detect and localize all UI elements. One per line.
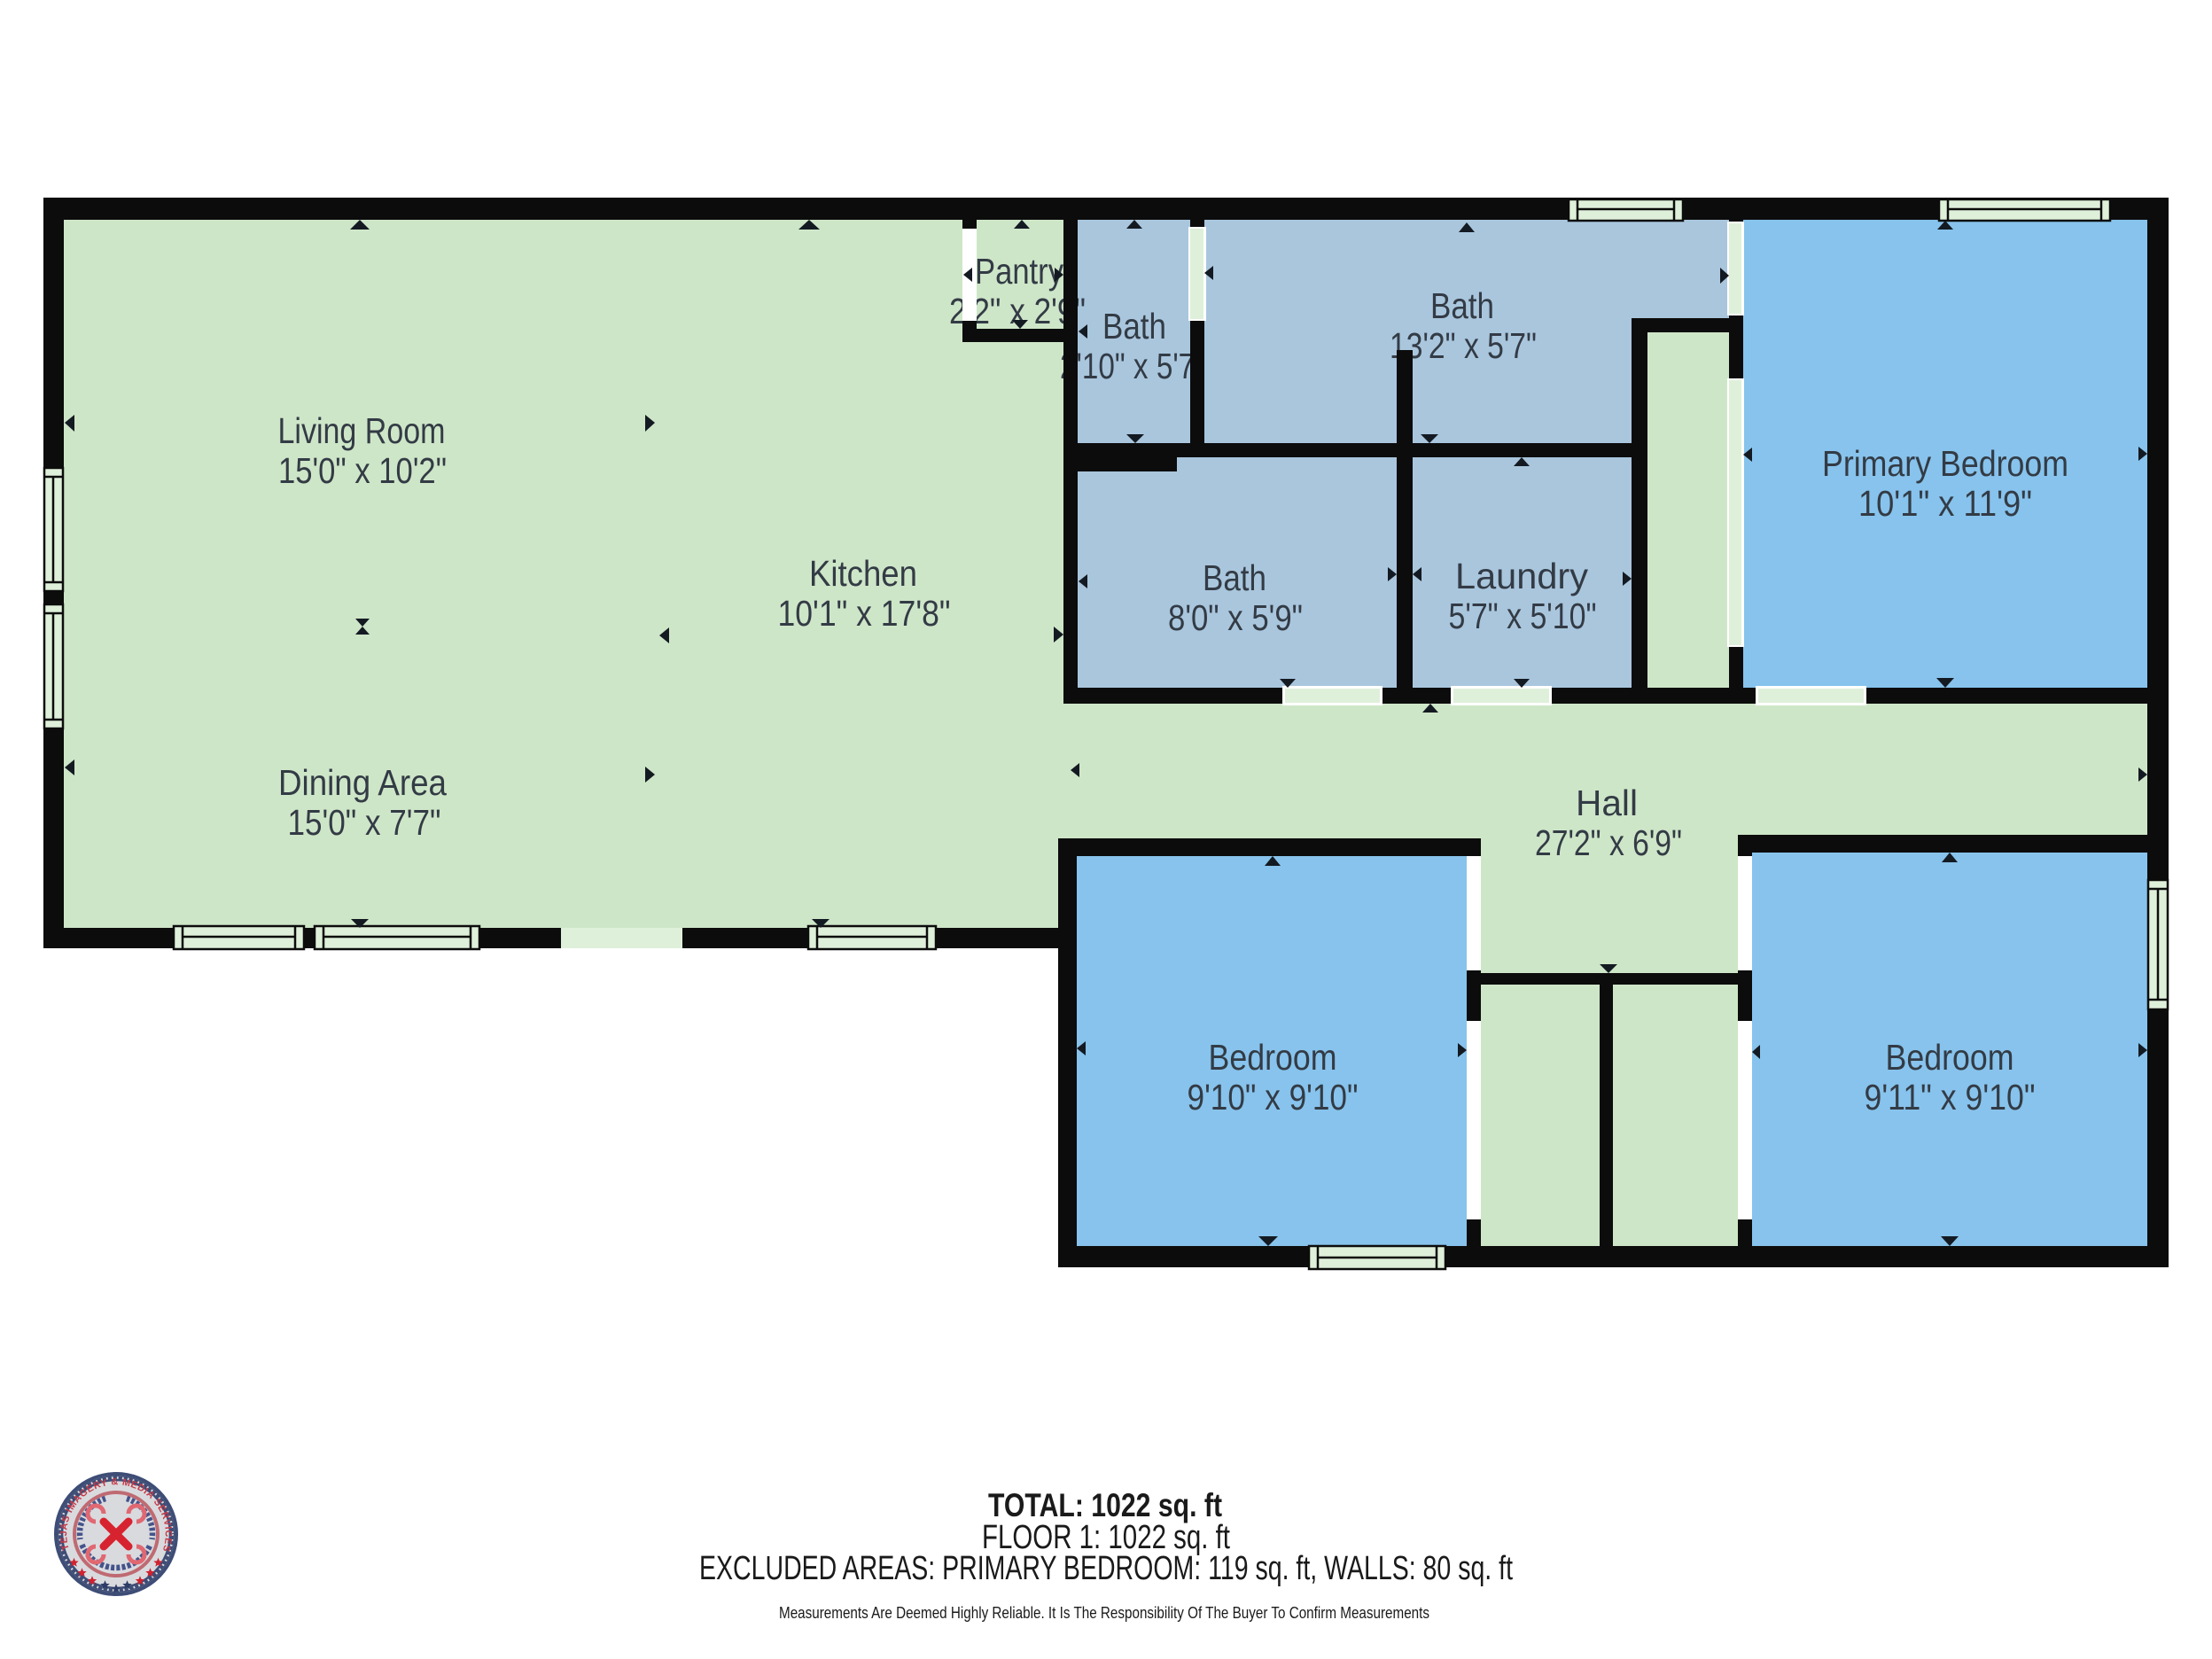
- svg-text:5'7" x 5'10": 5'7" x 5'10": [1449, 596, 1597, 636]
- svg-text:Bedroom: Bedroom: [1209, 1037, 1337, 1078]
- svg-text:9'10" x 9'10": 9'10" x 9'10": [1188, 1077, 1359, 1118]
- svg-text:Hall: Hall: [1576, 783, 1638, 823]
- svg-text:10'1" x 11'9": 10'1" x 11'9": [1858, 483, 2032, 524]
- svg-text:2'10" x 5'7": 2'10" x 5'7": [1060, 346, 1205, 386]
- svg-text:9'11" x 9'10": 9'11" x 9'10": [1865, 1077, 2036, 1118]
- svg-text:10'1" x 17'8": 10'1" x 17'8": [778, 593, 951, 634]
- svg-text:Laundry: Laundry: [1455, 556, 1588, 596]
- svg-text:27'2" x 6'9": 27'2" x 6'9": [1535, 822, 1682, 863]
- svg-text:Pantry: Pantry: [975, 251, 1063, 292]
- svg-text:15'0" x 7'7": 15'0" x 7'7": [288, 802, 441, 843]
- svg-text:8'0" x 5'9": 8'0" x 5'9": [1168, 597, 1303, 638]
- svg-text:15'0" x 10'2": 15'0" x 10'2": [278, 450, 447, 491]
- svg-text:Dining Area: Dining Area: [278, 762, 447, 803]
- svg-text:Bath: Bath: [1430, 285, 1494, 326]
- svg-text:Living Room: Living Room: [278, 410, 446, 451]
- svg-text:Bedroom: Bedroom: [1886, 1037, 2014, 1078]
- svg-text:Kitchen: Kitchen: [809, 553, 917, 594]
- svg-text:TOTAL: 1022 sq. ft: TOTAL: 1022 sq. ft: [988, 1487, 1222, 1523]
- svg-text:Measurements Are Deemed Highly: Measurements Are Deemed Highly Reliable.…: [779, 1604, 1429, 1622]
- svg-text:Bath: Bath: [1203, 557, 1266, 598]
- svg-text:Primary Bedroom: Primary Bedroom: [1822, 443, 2068, 484]
- svg-text:Bath: Bath: [1102, 306, 1166, 347]
- svg-text:EXCLUDED AREAS: PRIMARY BEDROO: EXCLUDED AREAS: PRIMARY BEDROOM: 119 sq.…: [699, 1550, 1513, 1587]
